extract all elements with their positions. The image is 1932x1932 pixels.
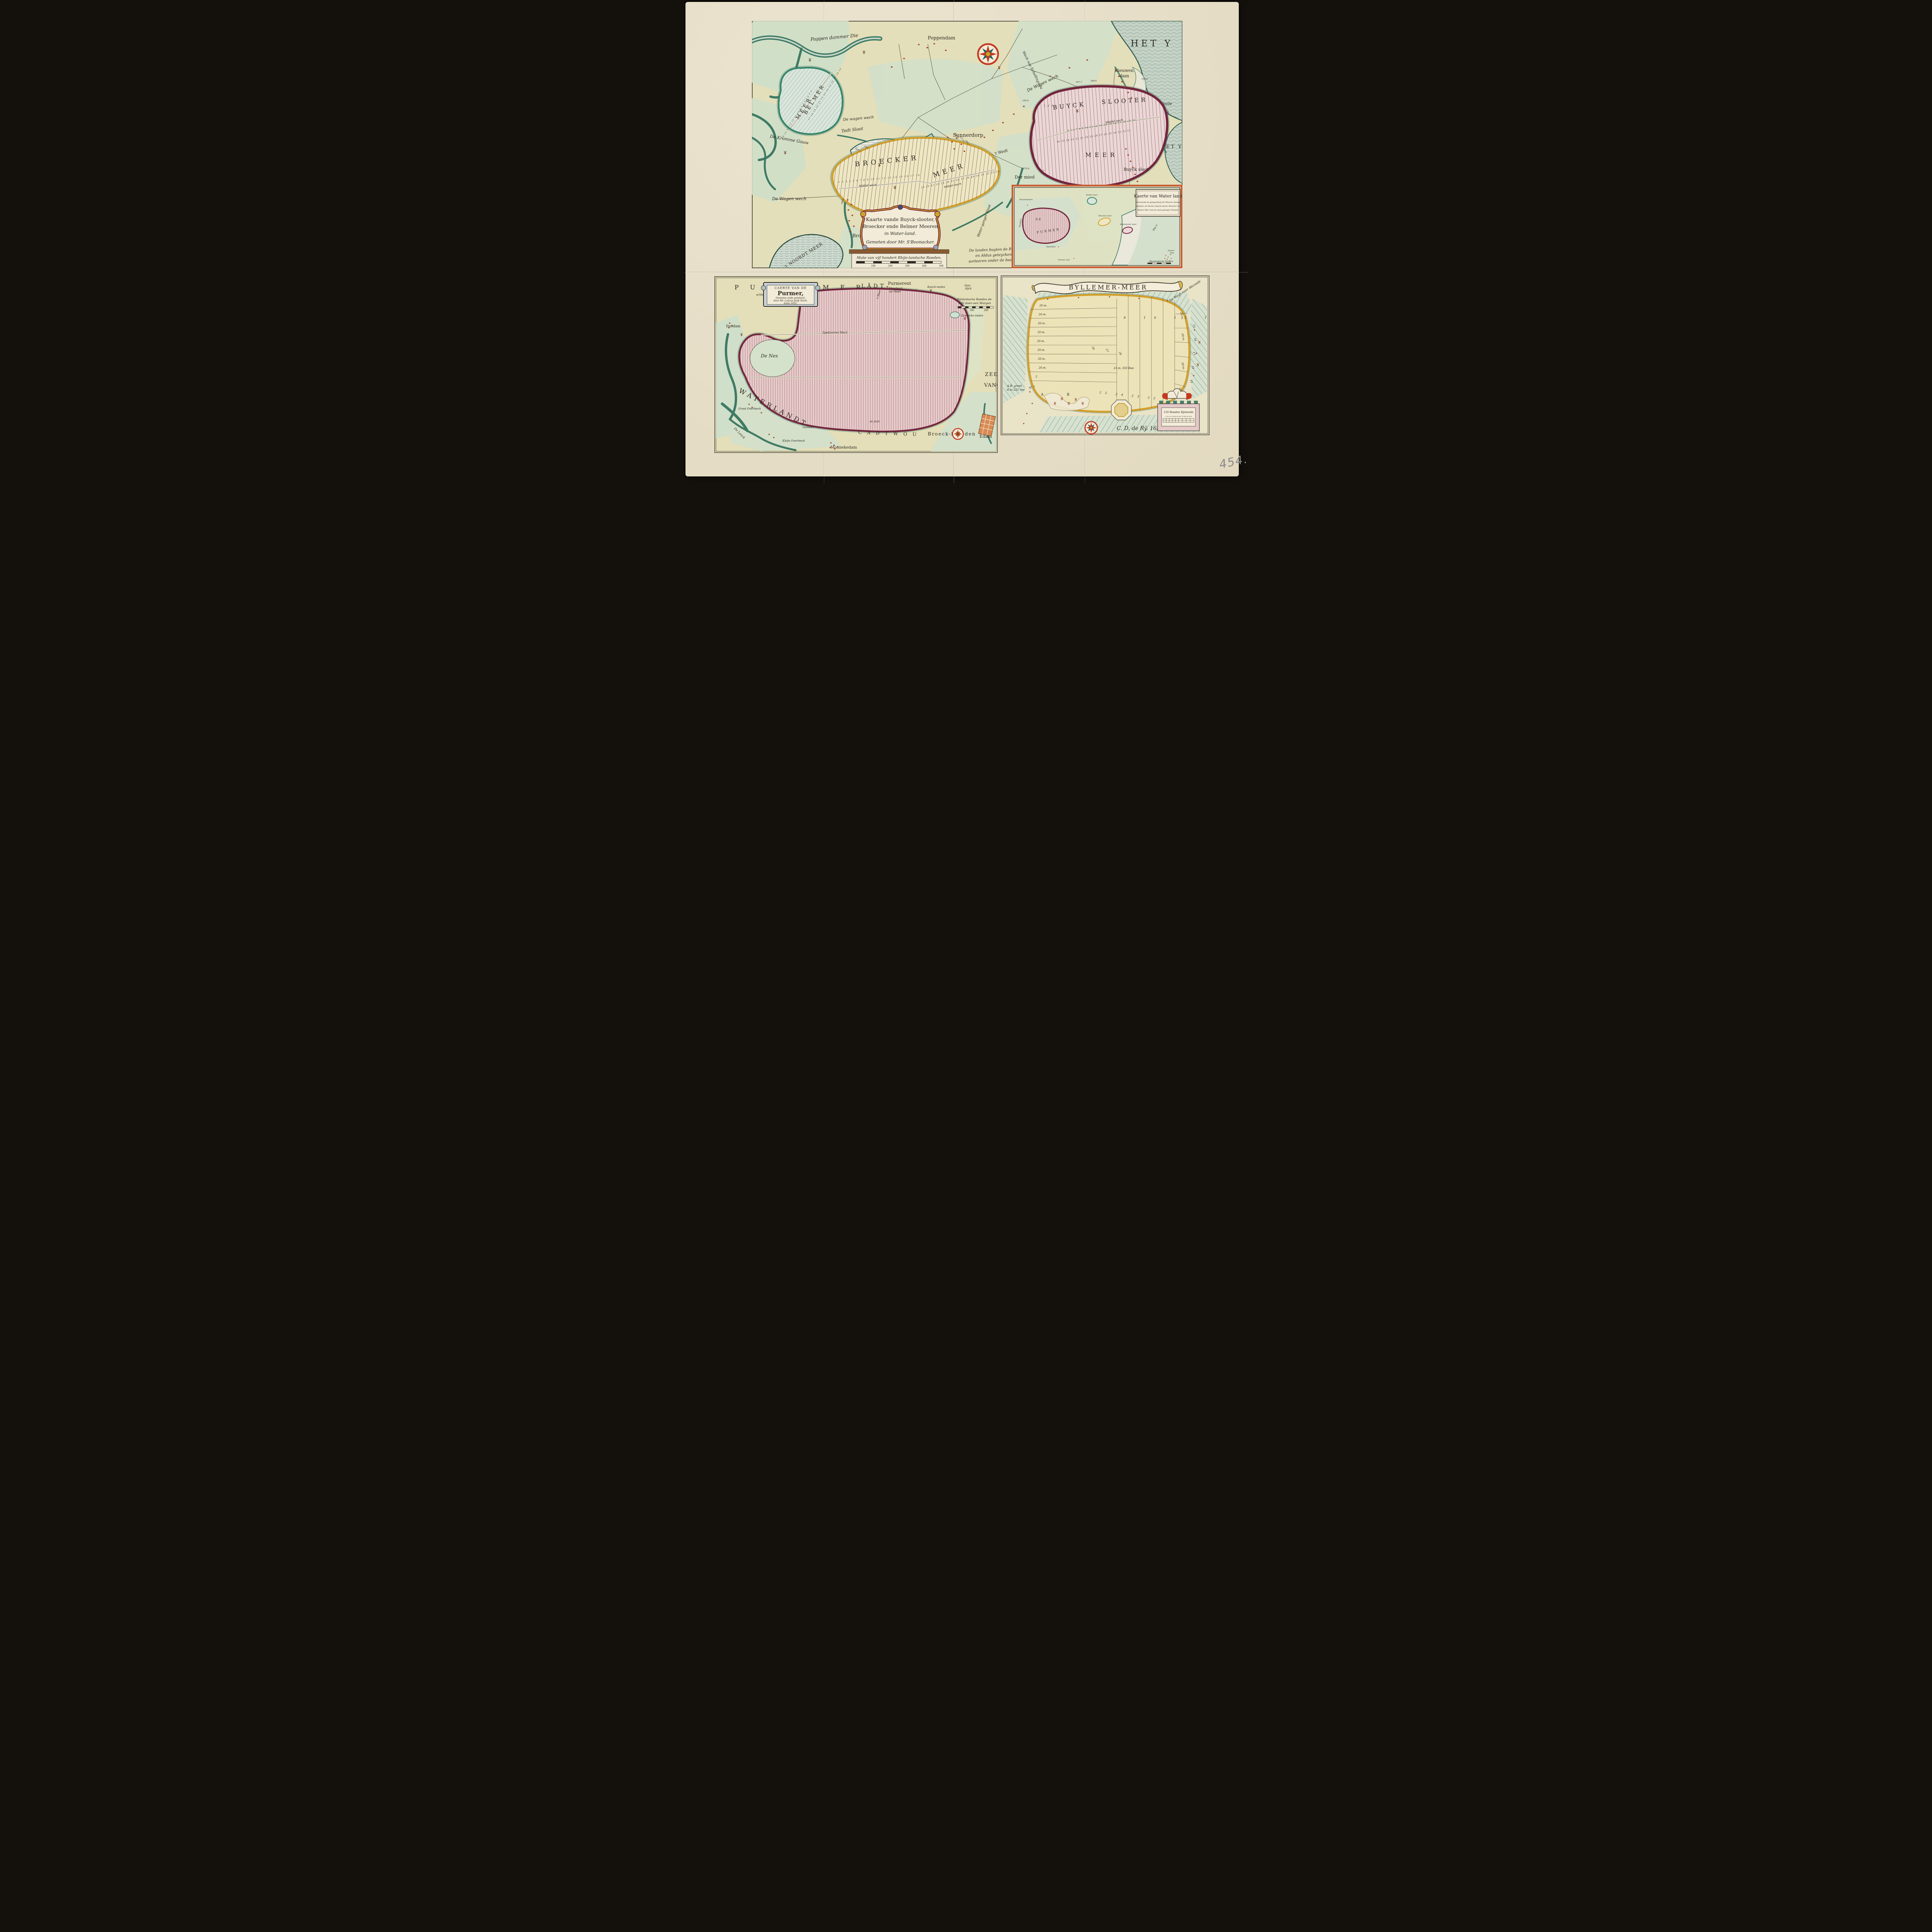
svg-text:Gemeten ende getekent,: Gemeten ende getekent,	[776, 297, 805, 299]
label-der-mied: Der mied	[1015, 175, 1035, 180]
svg-text:100: 100	[969, 309, 974, 312]
label-nieuwendam1: Nieuwen	[1114, 68, 1134, 73]
svg-text:20.m.: 20.m.	[1037, 322, 1046, 325]
svg-text:500: 500	[939, 265, 944, 267]
cartouche-line4: Gemeten door Mr. S'Boonacker.	[866, 240, 935, 245]
inset-map-svg: Kaerte van Water land Vertonende de gele…	[1012, 185, 1182, 268]
inset-title-box: Kaerte van Water land Vertonende de gele…	[1134, 189, 1182, 216]
svg-text:154.0.: 154.0.	[1141, 78, 1148, 80]
svg-text:167.7.: 167.7.	[1076, 81, 1083, 83]
svg-text:Purmer end: Purmer end	[1058, 259, 1070, 261]
svg-text:de Zedt: de Zedt	[870, 420, 880, 423]
svg-text:20.m.: 20.m.	[1037, 357, 1046, 361]
svg-text:Galileen: Galileen	[803, 426, 814, 429]
inset-sub3: Belmer Meer met de naest ghelegen Steede…	[1137, 209, 1179, 211]
svg-text:Buyckslooter meer: Buyckslooter meer	[1120, 223, 1137, 226]
inset-sub1: Vertonende de gelegentheyt der Meeren on…	[1136, 201, 1180, 204]
svg-text:21.m. 350 Roe:: 21.m. 350 Roe:	[1113, 367, 1134, 370]
svg-text:400: 400	[922, 265, 927, 267]
svg-text:2: 2	[1035, 375, 1037, 378]
svg-text:200: 200	[983, 309, 988, 312]
svg-text:100: 100	[871, 265, 876, 267]
svg-text:Broecker meer: Broecker meer	[1098, 215, 1112, 217]
buyck-numbers-a: 1 2 3	[1044, 105, 1053, 107]
svg-text:20.m.: 20.m.	[1038, 313, 1046, 316]
purmer-map-svg: De Nes Ilpedammer Wech P U R M E R LÃDT …	[714, 276, 998, 453]
svg-text:LÃDT: LÃDT	[861, 282, 886, 289]
svg-text:M E R: M E R	[823, 284, 865, 291]
svg-text:Purmerent: Purmerent	[888, 281, 912, 286]
svg-text:Qua:: Qua:	[964, 284, 971, 287]
label-ab-groot2: 8.m 231 roe	[1007, 388, 1025, 391]
svg-text:20.m.: 20.m.	[1039, 304, 1047, 307]
svg-text:Purmer,: Purmer,	[777, 290, 804, 297]
svg-text:600 doen een Morgen: 600 doen een Morgen	[959, 301, 991, 305]
svg-text:CAERTE VAN DE: CAERTE VAN DE	[774, 286, 806, 290]
byllemer-signature: C. D. de Rÿ. 1626	[1117, 425, 1163, 432]
svg-text:300: 300	[905, 265, 910, 267]
label-de-nes: De Nes	[760, 353, 778, 359]
svg-text:den: den	[965, 431, 976, 437]
svg-text:Rÿnlantsche Roeden de: Rÿnlantsche Roeden de	[957, 298, 992, 301]
purmer-map: De Nes Ilpedammer Wech P U R M E R LÃDT …	[714, 276, 998, 453]
svg-text:Ilpedam: Ilpedam	[726, 325, 741, 328]
svg-text:ter Weer: ter Weer	[889, 290, 901, 293]
inset-sub2: bedyckt, als Purmer, Buyck-slooter, Broe…	[1136, 205, 1180, 207]
svg-text:dÿck: dÿck	[965, 287, 972, 290]
byllemer-title: BYLLEMER-MEER	[1069, 284, 1148, 291]
inset-title: Kaerte van Water land	[1134, 194, 1182, 199]
svg-text:189.0.: 189.0.	[1090, 80, 1097, 82]
svg-text:Kooch-molen: Kooch-molen	[927, 286, 945, 289]
svg-text:Zevancks molen: Zevancks molen	[961, 314, 983, 317]
svg-text:Anno 1622.: Anno 1622.	[783, 302, 798, 305]
label-buyck-sloot: Buyck sloot	[1124, 167, 1149, 172]
svg-text:20.m.: 20.m.	[1038, 366, 1046, 369]
cartouche-line3: in Water-land.	[884, 231, 916, 236]
svg-text:275.0.: 275.0.	[1023, 168, 1030, 170]
svg-text:A: A	[1041, 393, 1044, 397]
svg-text:Groot Overleeck: Groot Overleeck	[738, 407, 761, 410]
svg-text:VANC: VANC	[984, 383, 998, 388]
svg-text:Kleÿn Overleeck: Kleÿn Overleeck	[782, 439, 805, 442]
main-scale-label: Mate van vÿf hondert Rhÿn-landsche Roede…	[856, 256, 942, 260]
svg-text:Monnekedam: Monnekedam	[1019, 199, 1033, 201]
svg-text:DE: DE	[1036, 218, 1042, 221]
byllemer-map-svg: BYLLEMER-MEER 20.m.	[1001, 276, 1209, 435]
cartouche-line1: Kaarte vande Buyck-slooter,	[866, 216, 935, 222]
cartouche-line2: Broecker ende Belmer Meeren	[862, 223, 938, 229]
lake-belmer-meer: BELMER MEER 16 15 14 13 12 11 10 9 8 7 6…	[779, 68, 842, 139]
svg-text:105.0.: 105.0.	[1022, 100, 1029, 102]
byllemer-scale-ticks: 5 10 20 30 40 50 60 70 80 90 100	[1165, 415, 1192, 417]
svg-text:20.m.: 20.m.	[1037, 331, 1045, 334]
byllemer-map: BYLLEMER-MEER 20.m.	[1001, 276, 1209, 435]
label-wagen-wech-left: De Wagen wech	[772, 196, 806, 201]
byllemer-scale-title: 150 Roeden Rÿnlands	[1163, 411, 1194, 414]
svg-text:Rhynlandsche Roeden: Rhynlandsche Roeden	[1149, 260, 1173, 263]
buyck-n37: 37	[1041, 170, 1044, 173]
label-ilpedammer-wech: Ilpedammer Wech	[822, 331, 847, 334]
svg-text:Amster: Amster	[1167, 250, 1175, 252]
svg-text:ZEE: ZEE	[985, 372, 998, 378]
label-ab-groot1: A.B. groot	[1007, 384, 1022, 388]
purmer-compass-rose	[952, 429, 963, 439]
svg-text:Belmer meer: Belmer meer	[1086, 194, 1098, 196]
sea-label-het-y: HET Y	[1131, 39, 1173, 49]
label-poppendam: Poppendam	[928, 35, 956, 41]
map-sheet-photo: HET Y HET Y De Voole wyck	[684, 0, 1248, 483]
svg-text:B: B	[1067, 393, 1070, 397]
svg-text:20.m.: 20.m.	[1037, 349, 1045, 352]
title-cartouche: Kaarte vande Buyck-slooter, Broecker end…	[849, 205, 949, 268]
svg-text:Ilpendam: Ilpendam	[1046, 246, 1056, 248]
svg-text:door Mr. Luÿcas Janß Sinck.: door Mr. Luÿcas Janß Sinck.	[774, 299, 808, 302]
svg-text:Visscherÿ: Visscherÿ	[889, 287, 903, 290]
svg-text:20.m.: 20.m.	[1037, 340, 1045, 343]
svg-text:dam: dam	[1170, 252, 1174, 254]
svg-text:200: 200	[888, 265, 893, 267]
svg-text:9 10 11 12 13 14: 9 10 11 12 13 14	[1124, 316, 1209, 320]
label-nieuwendam2: dam	[1120, 73, 1129, 78]
octagon-pond	[1111, 400, 1131, 420]
inset-map-waterland: Kaerte van Water land Vertonende de gele…	[1012, 185, 1182, 268]
buyck-name3: MEER	[1085, 151, 1118, 158]
purmer-cartouche: CAERTE VAN DE Purmer, Gemeten ende getek…	[761, 282, 820, 306]
